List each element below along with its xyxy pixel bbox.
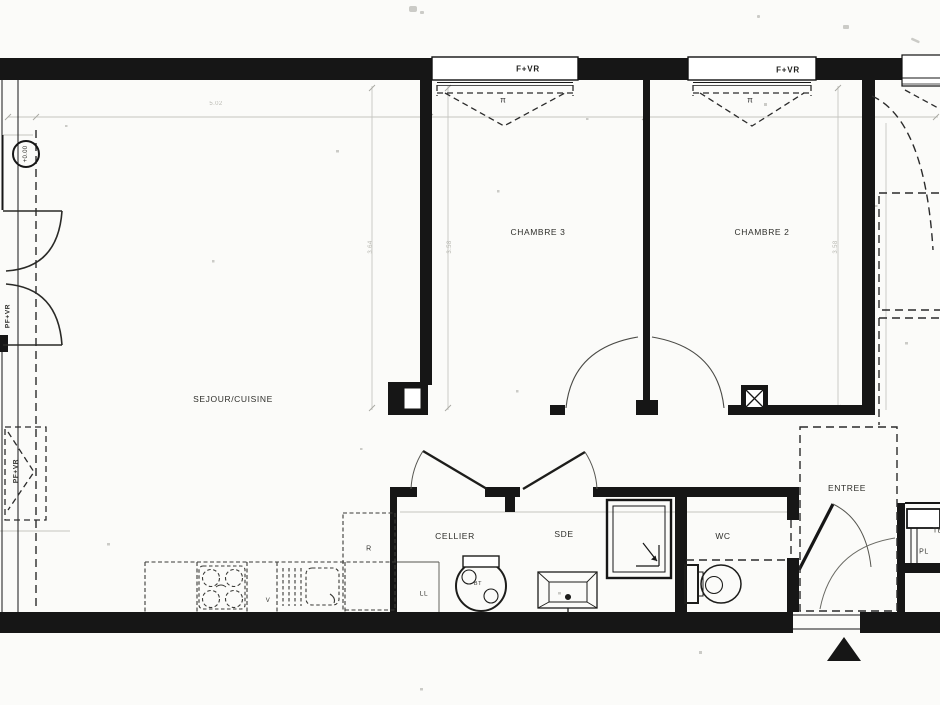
label-cellier: CELLIER [435,531,475,541]
room-sejour-cuisine [20,80,420,610]
label-fridge: R [366,546,372,553]
placard-right [879,193,940,310]
window-opening-symbol-1: π [500,96,506,105]
room-entree [800,427,897,614]
x-block [746,390,763,407]
label-sink: V [266,598,271,604]
door-sde [523,452,597,489]
dim-chambre3-depth: 3.58 [447,240,453,253]
room-sde [516,497,675,612]
label-sde: SDE [554,529,573,539]
label-water-heater: BT [474,581,482,587]
window-right-partial [902,55,940,108]
window-opening-symbol-2: π [747,96,753,105]
level-marker-text: +0.00 [23,146,29,163]
label-sejour-cuisine: SEJOUR/CUISINE [193,394,273,404]
dim-sejour-width: 5.02 [209,101,222,107]
label-tech: TE [933,528,940,535]
label-chambre2: CHAMBRE 2 [735,227,790,237]
dim-sejour-depth: 3.64 [368,240,374,253]
label-pfvr-window: PF+VR [13,459,20,483]
door-cellier [411,451,487,489]
window-label-fvr-2: F+VR [776,66,800,75]
room-chambre3 [432,80,643,405]
entrance-threshold [793,615,860,629]
door-swing-right-room [872,96,933,250]
floor-plan-scan: F+VR F+VR π π SEJOUR/CUISINE CHAMBRE 3 C… [0,0,940,705]
label-washer: LL [420,591,428,598]
floor-plan-drawing [0,0,940,705]
label-pfvr-door: PF+VR [5,304,12,328]
room-chambre2 [651,80,862,405]
entrance-triangle-icon [827,637,861,661]
label-wc: WC [715,531,730,541]
label-entree: ENTREE [828,483,866,493]
label-closet-pl: PL [919,549,929,556]
dim-chambre2-depth: 3.58 [833,240,839,253]
window-label-fvr-1: F+VR [516,65,540,74]
duct-opening [404,388,421,409]
room-cellier [398,497,500,612]
label-chambre3: CHAMBRE 3 [511,227,566,237]
